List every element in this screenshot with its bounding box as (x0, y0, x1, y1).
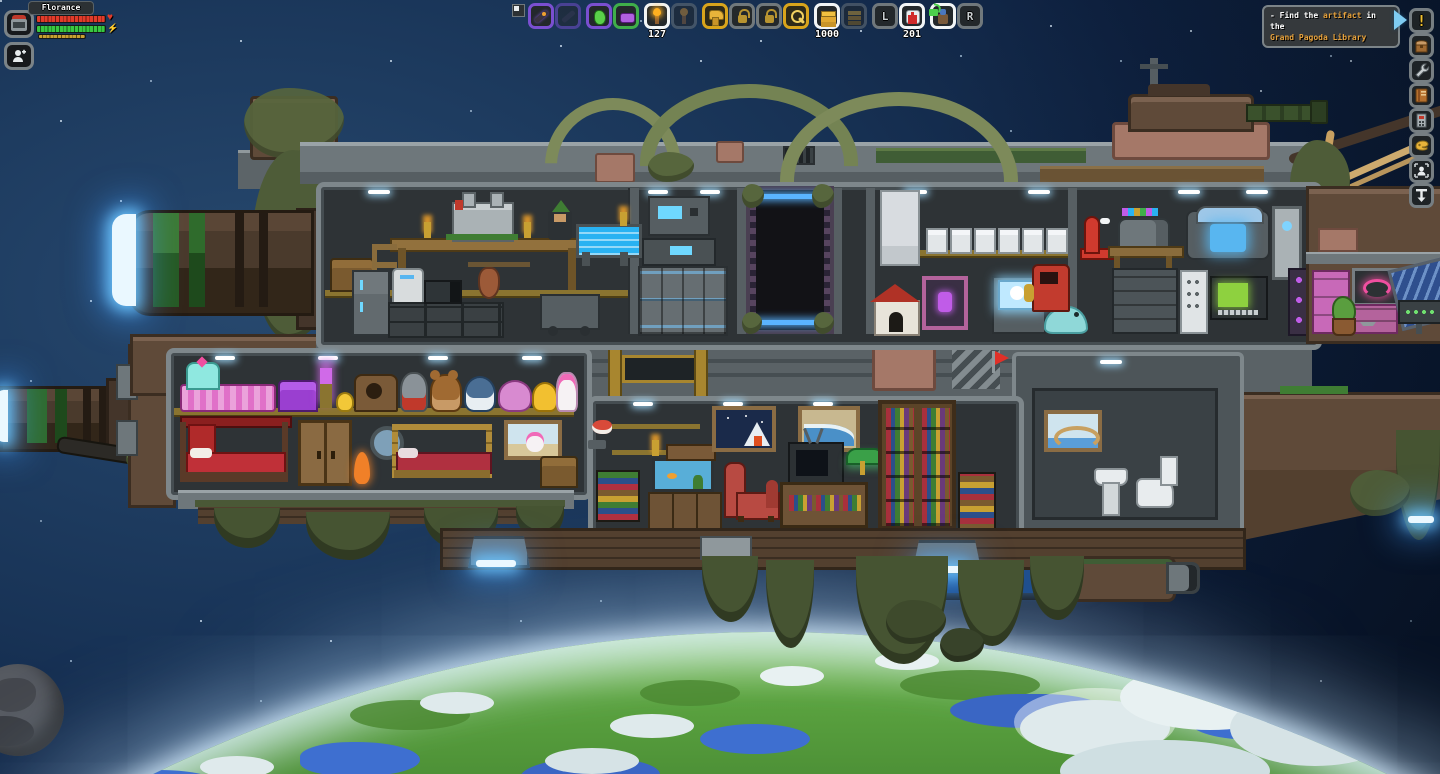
food-bar (38, 34, 86, 39)
room-divider (737, 188, 746, 334)
sidebar-terminal-button[interactable] (1409, 108, 1434, 133)
hotbar-toggle-glyph (514, 6, 519, 11)
engine-lower-glow (0, 390, 8, 442)
castle-flag (455, 200, 463, 210)
slug-eye (1074, 312, 1079, 317)
hotbar-slot-dagger-alt[interactable] (555, 3, 581, 29)
crafting-wrench-icon (1413, 62, 1430, 79)
inventory-bag-icon (1413, 37, 1430, 54)
microscope-red (1080, 216, 1110, 256)
hotbar-lock-indicator[interactable] (928, 4, 940, 16)
holo-table-leg (582, 252, 590, 266)
bamboo-pillow (398, 448, 418, 458)
canopy-base (182, 472, 286, 482)
pixels-count: 1000 (815, 29, 839, 41)
quest-text-highlight: artifact (1323, 11, 1362, 20)
plush-unicorn (556, 372, 578, 412)
pink-machine-glyph (938, 292, 952, 312)
armchair-leg (768, 516, 774, 522)
stand-candle (652, 440, 659, 456)
keel-moss (195, 500, 565, 507)
sidebar-inventory-button[interactable] (1409, 33, 1434, 58)
engine-ring (259, 213, 268, 307)
ceiling-light (1100, 360, 1122, 364)
hotbar-slot-right-hand[interactable]: R (957, 3, 983, 29)
player-name: Florance (42, 4, 81, 12)
painting-creature (526, 432, 544, 452)
wall-candle (620, 212, 627, 226)
machine-button (690, 208, 698, 216)
lock-shackle (739, 9, 750, 18)
hotbar-group-pixels: 1000 (814, 3, 867, 29)
player-nameplate: Florance (28, 1, 94, 15)
bookshelf-books (886, 408, 914, 526)
wall-machine (648, 196, 710, 236)
party-invite-button[interactable] (4, 42, 34, 70)
keel-vine-hang (306, 512, 390, 560)
dog-house-roof (870, 284, 920, 302)
holo-table-leg (620, 252, 628, 266)
stool (1360, 322, 1376, 334)
quest-text-bullet: - Find the (1270, 11, 1323, 20)
ufo-dome (1196, 206, 1264, 224)
aft-engine-nozzle (1166, 562, 1200, 594)
volcano-painting (712, 406, 776, 452)
keel-vine-hang (214, 508, 280, 548)
hotbar-group-3: 127 (644, 3, 697, 29)
green-light-machine (1398, 300, 1440, 324)
microscope-eyes (1100, 218, 1110, 224)
beach-painting (504, 420, 562, 460)
hotbar-slot-locked[interactable] (729, 3, 755, 29)
canopy-bed (180, 416, 288, 482)
quest-tracker-arrow[interactable] (1394, 10, 1407, 30)
lab-canister (926, 228, 948, 254)
dog-house-door (889, 312, 903, 332)
goblin-hat (552, 200, 570, 212)
princess-bed-canopy (186, 362, 220, 390)
plush-chick (336, 392, 354, 412)
fridge-handle (360, 280, 363, 290)
pink-machine (922, 276, 968, 330)
sidebar-character-button[interactable] (1409, 158, 1434, 183)
codex-book-icon (1413, 87, 1430, 104)
thread-spools (1122, 208, 1158, 216)
beam-down-icon (1413, 187, 1430, 204)
engine-upper-body (128, 210, 314, 316)
aquarium (652, 458, 714, 492)
white-fridge (880, 190, 920, 266)
bridge-painting (1044, 410, 1102, 452)
tv-screen (796, 450, 828, 476)
wardrobe-handle (317, 451, 321, 459)
hanging-rack (468, 262, 530, 267)
console-screen (670, 246, 692, 255)
ceiling-light (648, 190, 668, 194)
hotbar-slot-purple-item[interactable] (613, 3, 639, 29)
door-window (1282, 221, 1292, 231)
bamboo-bed (392, 424, 492, 480)
wardrobe (298, 420, 352, 486)
matter-manipulator-handle (712, 17, 719, 26)
hotbar-group-left-hand: L 201 (872, 3, 925, 29)
painting-bridge-arc (1054, 426, 1100, 450)
lab-canister (974, 228, 996, 254)
sidebar-collections-button[interactable] (1409, 133, 1434, 158)
sidebar-quests-button[interactable]: ! (1409, 8, 1434, 33)
painting-lava (754, 436, 762, 446)
hotbar-slot-pixels[interactable]: 1000 (814, 3, 840, 29)
plush-purple-chest (278, 380, 318, 412)
teleporter-rail (824, 190, 830, 330)
room-divider (833, 188, 842, 334)
stored-gun (588, 440, 606, 449)
purple-candle (320, 368, 332, 408)
hotbar-slot-healing[interactable]: 201 (899, 3, 925, 29)
mech-claw (1024, 284, 1034, 302)
hotbar-slot-matter-manipulator[interactable] (702, 3, 728, 29)
ceiling-light (368, 190, 390, 194)
torch-flame (653, 8, 661, 16)
hotbar-group-2 (586, 3, 639, 29)
stern-underlight (1408, 516, 1434, 523)
banker-lamp (846, 448, 880, 480)
retro-radio (354, 374, 398, 412)
person-plus-icon (11, 48, 27, 64)
hanging-meat (478, 267, 500, 299)
collections-trophy-icon (1413, 137, 1430, 154)
ceiling-light (1246, 190, 1268, 194)
cactus-pot (1332, 318, 1356, 336)
lab-canister (950, 228, 972, 254)
ceiling-light (633, 402, 653, 406)
energy-bar (36, 25, 106, 33)
magnifier-handle (798, 17, 805, 24)
ceiling-light (1178, 190, 1200, 194)
table-candle (424, 222, 431, 238)
wall-shelf (612, 424, 700, 429)
green-screen-console (1210, 276, 1268, 320)
table-leg (568, 248, 576, 290)
fridge (352, 270, 390, 336)
belly-vine-hang (1030, 556, 1084, 620)
torch-icon (682, 15, 686, 24)
keypad-column (1180, 270, 1208, 334)
bathroom-room (1032, 388, 1218, 520)
castle-tower (462, 192, 476, 208)
castle-lawn (446, 234, 518, 240)
red-pennant (995, 351, 1009, 365)
conveyor-gold-pillar (694, 345, 708, 399)
lab-canister (1022, 228, 1044, 254)
robot-chef (392, 268, 424, 306)
engine-ring (235, 213, 244, 307)
belly-vine-hang (766, 560, 814, 648)
machine-screen (658, 206, 682, 219)
book-pile (596, 470, 640, 522)
purple-item-icon (620, 13, 635, 23)
turret-mast-crossbar (1140, 64, 1168, 69)
armchair-leg (738, 516, 744, 522)
console-keys (1218, 310, 1258, 315)
hotbar-slot-inspect[interactable] (783, 3, 809, 29)
kitchen-cart (540, 294, 600, 330)
plush-blob (498, 380, 532, 412)
flying-critter (592, 420, 612, 434)
engine-upper-glow (112, 214, 136, 306)
energy-bolt-icon: ⚡ (107, 23, 118, 33)
mech-cockpit (1040, 272, 1058, 284)
hotbar-slot-dagger[interactable] (528, 3, 554, 29)
hotbar-slot-left-hand[interactable]: L (872, 3, 898, 29)
deck-wood-strip (1040, 166, 1264, 183)
red-armchair (724, 462, 780, 522)
hotbar-group-essential-1 (702, 3, 809, 29)
torch-count: 127 (648, 29, 666, 41)
bow-bracket-plate (116, 420, 138, 456)
belly-vine-hang (702, 556, 758, 622)
right-hand-label: R (967, 10, 974, 23)
turret-barrel (1246, 104, 1316, 122)
ceiling-light (215, 356, 235, 360)
engine-ring (83, 389, 91, 443)
character-frame-icon (1413, 162, 1430, 179)
torch-flame (680, 8, 688, 16)
fridge-handle (360, 302, 363, 312)
game-viewport: Florance ♥ ⚡ 127 (0, 0, 1440, 774)
ceiling-light (700, 190, 720, 194)
conveyor-belt (622, 355, 698, 383)
pixel-voxel-icon (821, 11, 836, 17)
aquarium-plant (693, 475, 703, 489)
heart-icon: ♥ (107, 13, 113, 23)
aquarium-stand (648, 492, 722, 532)
lock-shackle (766, 9, 777, 18)
stern-hatch-panel (1318, 228, 1358, 252)
robot-chef-eyes (400, 275, 414, 279)
engine-stripe-green (153, 213, 179, 307)
cart-wheel (548, 326, 558, 336)
canopy-pillow (190, 448, 212, 458)
bookshelf-books (922, 408, 950, 526)
hotbar-slot-torch-alt[interactable] (671, 3, 697, 29)
locker-bank (638, 266, 728, 336)
tall-bookshelf (878, 400, 956, 530)
left-hand-label: L (882, 10, 889, 23)
sidebar-crafting-button[interactable] (1409, 58, 1434, 83)
hotbar-slot-green-item[interactable] (586, 3, 612, 29)
stern-green-trim (1280, 386, 1348, 394)
plush-penguin (464, 376, 496, 412)
dagger-icon (561, 10, 576, 23)
corridor-hatch (872, 345, 936, 391)
figurine-head (940, 9, 946, 15)
thruster-pod-glow (476, 560, 516, 567)
wardrobe-handle (331, 451, 335, 459)
green-item-icon (594, 10, 606, 25)
portrait-visor (13, 22, 25, 28)
healing-count: 201 (903, 29, 921, 41)
lamp-stem (860, 461, 865, 475)
table-candle (524, 222, 531, 238)
turret-muzzle (1310, 100, 1328, 124)
terminal-keypad-icon (1413, 112, 1430, 129)
dog-house (874, 300, 920, 336)
sidebar-codex-button[interactable] (1409, 83, 1434, 108)
belly-vine-clump (886, 600, 946, 644)
quest-exclamation-icon: ! (1417, 12, 1426, 30)
dagger-spark (542, 12, 546, 16)
ufo-core (1210, 224, 1246, 252)
quest-tracker[interactable]: - Find the artifact in the Grand Pagoda … (1262, 5, 1400, 48)
hotbar-slot-torch[interactable]: 127 (644, 3, 670, 29)
turret-top-knob (1148, 84, 1210, 96)
hotbar-group-1 (528, 3, 581, 29)
hotbar-toggle[interactable] (512, 4, 525, 17)
ufo-machine (1186, 210, 1270, 260)
toilet-tank (1160, 456, 1178, 486)
bedroom-chest (540, 456, 578, 488)
torch-icon (655, 15, 659, 24)
hotbar-slot-pixels-alt[interactable] (841, 3, 867, 29)
hotbar-slot-locked[interactable] (756, 3, 782, 29)
npc-goblin (548, 210, 572, 240)
server-machine (1112, 268, 1178, 334)
ship-scene[interactable] (0, 0, 1440, 774)
bamboo-base (394, 470, 490, 478)
tv-cabinet (780, 482, 868, 528)
ceiling-light (318, 356, 338, 360)
conveyor-gold-pillar (608, 345, 622, 399)
holo-terminal-core (1010, 286, 1024, 300)
quest-location: Grand Pagoda Library (1270, 32, 1392, 43)
engine-stripe-green (189, 213, 205, 307)
cabinet-books (789, 495, 861, 511)
ceiling-light (522, 356, 542, 360)
sink-pedestal (1102, 482, 1120, 516)
cart-wheel (580, 326, 590, 336)
engine-stripe-green (55, 389, 67, 443)
plush-duck (532, 382, 558, 412)
belly-vine-clump (940, 628, 984, 662)
engine-stripe-green (27, 389, 47, 443)
sidebar-beam-down-button[interactable] (1409, 183, 1434, 208)
health-bar (36, 15, 106, 23)
goblin-face (554, 214, 566, 222)
stand-drawers (666, 444, 716, 461)
ceiling-light (1028, 190, 1050, 194)
radio-speaker (366, 383, 382, 399)
castle-tower (490, 192, 504, 208)
microscope-arm (1084, 216, 1100, 254)
green-screen (1218, 283, 1248, 307)
retro-tv (788, 442, 844, 486)
hotbar: 127 (528, 3, 983, 29)
healing-cross (911, 12, 914, 21)
neon-squiggle (1363, 279, 1391, 297)
pixel-voxel-icon (848, 11, 861, 15)
armchair-arm (766, 480, 778, 508)
aquarium-fish (667, 473, 677, 479)
book-pile (958, 472, 996, 532)
lab-canister (998, 228, 1020, 254)
bamboo-rail (392, 424, 492, 430)
lab-canister (1046, 228, 1068, 254)
red-mech-suit (1032, 264, 1070, 312)
turret-body (1128, 94, 1254, 132)
console-machine (642, 238, 716, 266)
teleporter-rail (750, 190, 756, 330)
